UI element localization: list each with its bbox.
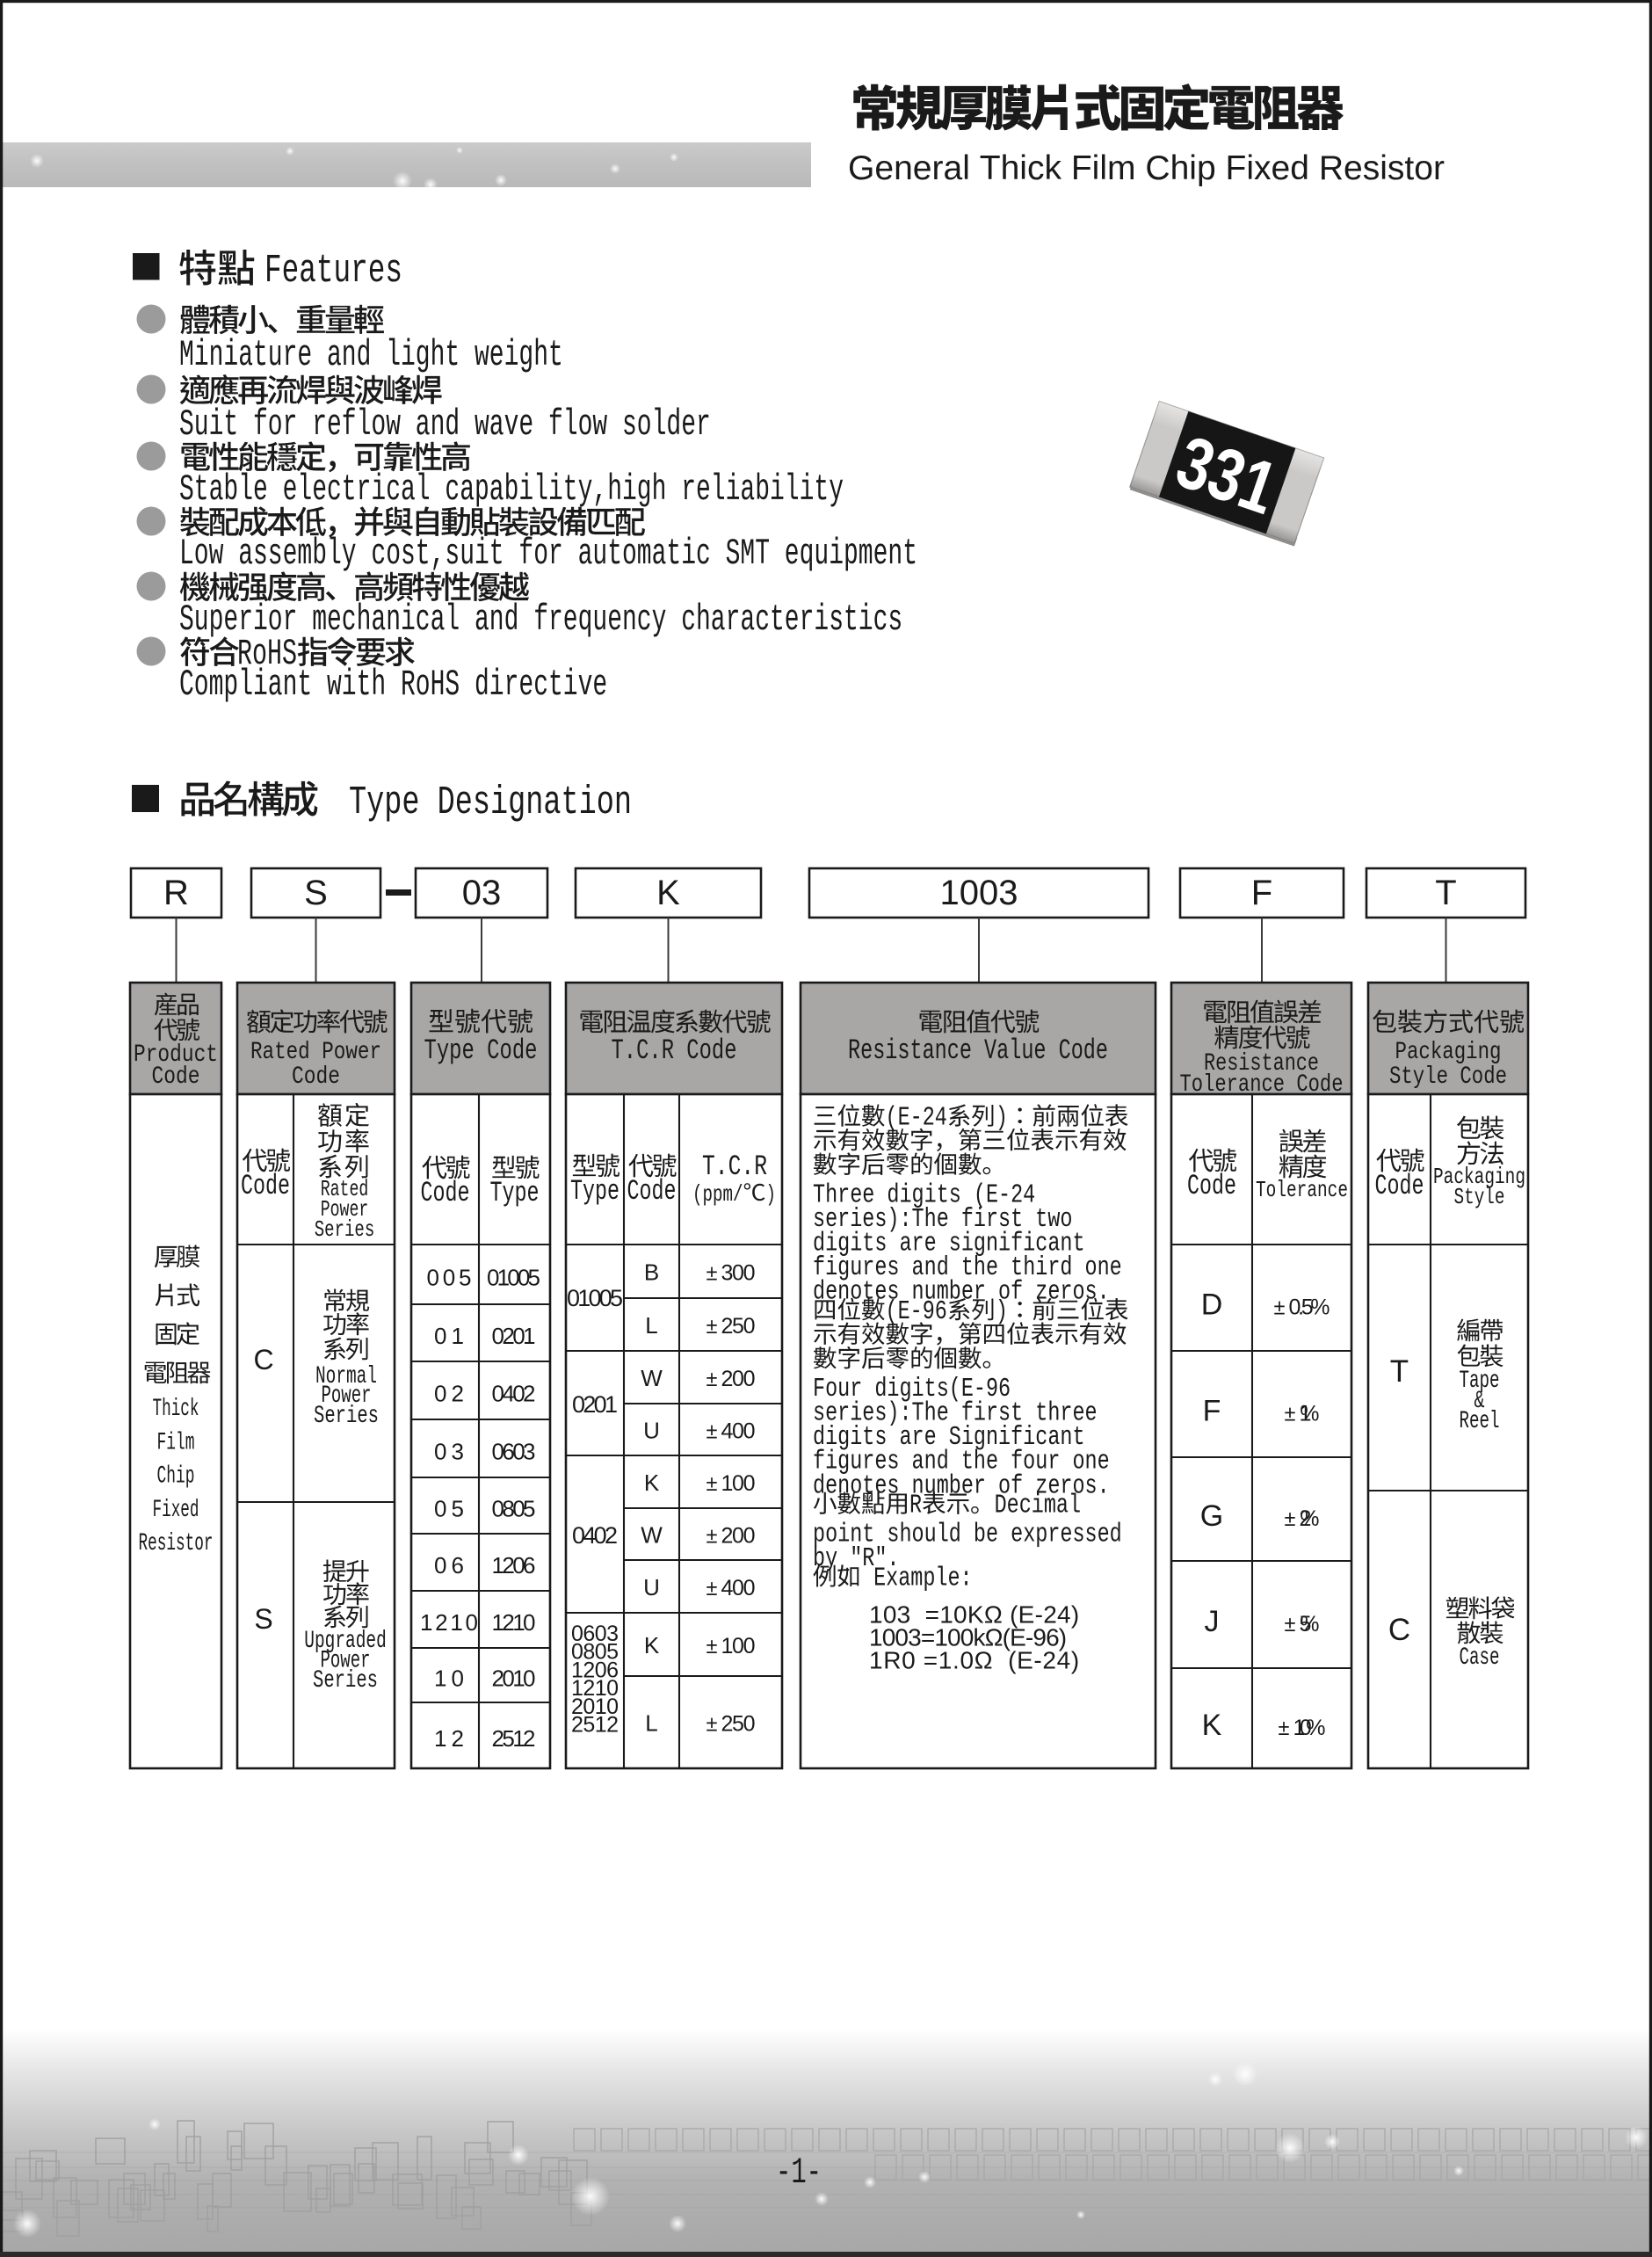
svg-text:200: 200 [721,1367,756,1391]
svg-text:Miniature and light weight: Miniature and light weight [179,334,563,376]
svg-text:L: L [645,1312,657,1339]
svg-text:400: 400 [721,1419,756,1444]
svg-text:5%: 5% [1300,1612,1320,1637]
svg-text:R: R [909,1491,922,1521]
svg-text:K: K [656,874,680,912]
svg-text:Code: Code [241,1170,290,1202]
svg-text:J: J [1205,1605,1220,1638]
svg-text:0.5%: 0.5% [1289,1295,1330,1320]
svg-text:Low assembly cost,suit for aut: Low assembly cost,suit for automatic SMT… [179,533,917,575]
svg-text:±: ± [1285,1402,1296,1426]
svg-text:Code: Code [292,1063,340,1091]
svg-text:1210: 1210 [492,1609,536,1636]
svg-text:Resistor: Resistor [139,1530,214,1557]
svg-text:2512: 2512 [492,1725,536,1752]
svg-text:S: S [304,874,328,912]
svg-text:1003: 1003 [940,874,1018,912]
svg-text:Code: Code [152,1063,200,1091]
svg-text:Compliant with RoHS directive: Compliant with RoHS directive [179,664,607,706]
svg-text:10%: 10% [1293,1716,1326,1740]
svg-text:Type: Type [490,1177,540,1209]
svg-text:T.C.R: T.C.R [702,1150,767,1183]
svg-text:2%: 2% [1300,1506,1320,1531]
svg-text:K: K [644,1470,660,1496]
svg-text:Series: Series [314,1403,379,1430]
svg-text:100: 100 [721,1634,756,1658]
svg-text:(E-96: (E-96 [886,1296,947,1327]
svg-text:Style: Style [1454,1184,1505,1210]
svg-text:U: U [643,1574,660,1600]
svg-text:±: ± [706,1712,718,1737]
svg-text:Packaging: Packaging [1395,1039,1502,1066]
svg-text:W: W [641,1365,663,1391]
svg-text:100: 100 [721,1471,756,1496]
svg-text:±: ± [706,1576,718,1600]
svg-text:Chip: Chip [157,1463,195,1491]
svg-text:F: F [1251,874,1272,912]
svg-text:Type: Type [570,1175,619,1208]
svg-text:Reel: Reel [1460,1408,1500,1435]
svg-text:(E-24: (E-24 [886,1103,947,1134]
svg-text:S: S [254,1603,272,1635]
svg-text:Suit for reflow and wave flow: Suit for reflow and wave flow solder [179,403,711,446]
svg-text:Type Code: Type Code [424,1034,538,1067]
svg-text:U: U [643,1418,660,1444]
svg-text:Case: Case [1460,1644,1500,1672]
svg-text:±: ± [706,1471,718,1496]
svg-text:0402: 0402 [572,1522,618,1549]
svg-text:(ppm/: (ppm/ [692,1181,743,1208]
svg-text:L: L [645,1710,657,1737]
svg-text:F: F [1203,1395,1221,1428]
svg-text:1206: 1206 [492,1552,536,1578]
svg-text:1%: 1% [1300,1402,1320,1426]
svg-text:200: 200 [721,1524,756,1549]
svg-text:300: 300 [721,1261,756,1286]
svg-text:General Thick Film Chip Fixed: General Thick Film Chip Fixed Resistor [848,149,1445,187]
svg-text:R: R [163,874,189,912]
svg-text:250: 250 [721,1314,756,1339]
svg-text:0805: 0805 [492,1496,536,1522]
svg-text:Features: Features [264,249,402,294]
svg-text:±: ± [706,1419,718,1444]
svg-text:005: 005 [427,1265,472,1291]
svg-text:T: T [1435,874,1456,912]
svg-text:±: ± [706,1367,718,1391]
svg-text:C: C [253,1344,273,1375]
svg-text:Style Code: Style Code [1389,1063,1507,1091]
svg-text:Resistance Value Code: Resistance Value Code [848,1034,1108,1067]
svg-text:01005: 01005 [567,1285,623,1311]
svg-text:±: ± [706,1261,718,1286]
svg-text:Rated Power: Rated Power [250,1039,381,1066]
svg-text:Code: Code [421,1177,470,1209]
svg-text:±: ± [1285,1612,1296,1637]
svg-text:2010: 2010 [492,1666,536,1692]
svg-text:): ) [766,1181,777,1208]
svg-text:W: W [641,1522,663,1549]
svg-text:Fixed: Fixed [153,1497,199,1524]
svg-text:Example:: Example: [861,1563,973,1593]
svg-text:250: 250 [721,1712,756,1737]
svg-text:C: C [1388,1613,1410,1647]
svg-text:Code: Code [627,1175,677,1208]
svg-text:01005: 01005 [487,1265,540,1291]
svg-text:0402: 0402 [492,1381,536,1407]
svg-text:Film: Film [157,1429,195,1456]
svg-text:±: ± [1285,1506,1296,1531]
svg-text:K: K [644,1632,660,1658]
svg-text:Decimal: Decimal [995,1491,1081,1521]
svg-text:400: 400 [721,1576,756,1600]
svg-text:0603: 0603 [492,1439,536,1465]
svg-text:±: ± [706,1314,718,1339]
svg-text:Tolerance: Tolerance [1256,1177,1348,1203]
svg-text:G: G [1200,1499,1223,1533]
svg-text:1R0 =1.0Ω (E-24): 1R0 =1.0Ω (E-24) [869,1647,1079,1674]
svg-text:): ) [996,1296,1008,1327]
svg-text:D: D [1201,1288,1223,1322]
svg-text:B: B [644,1259,659,1286]
svg-text:Code: Code [1187,1170,1236,1202]
svg-text:±: ± [1274,1295,1286,1320]
svg-text:Thick: Thick [153,1396,199,1423]
svg-text:T.C.R Code: T.C.R Code [612,1034,737,1067]
svg-text:03: 03 [462,874,502,912]
svg-text:-1-: -1- [776,2152,822,2194]
svg-text:Code: Code [1375,1170,1424,1202]
svg-text:Stable electrical capability,h: Stable electrical capability,high reliab… [179,468,844,511]
svg-text:T: T [1390,1354,1409,1389]
svg-text:K: K [1202,1709,1222,1742]
svg-text:±: ± [1279,1716,1290,1740]
svg-text:Series: Series [313,1667,378,1695]
svg-text:0201: 0201 [492,1323,536,1349]
svg-text:2512: 2512 [571,1713,619,1738]
svg-text:Type Designation: Type Designation [349,780,632,825]
svg-text:0201: 0201 [572,1391,618,1418]
svg-text:±: ± [706,1524,718,1549]
svg-text:): ) [996,1103,1008,1134]
svg-text:Series: Series [315,1216,375,1243]
svg-text:±: ± [706,1634,718,1658]
